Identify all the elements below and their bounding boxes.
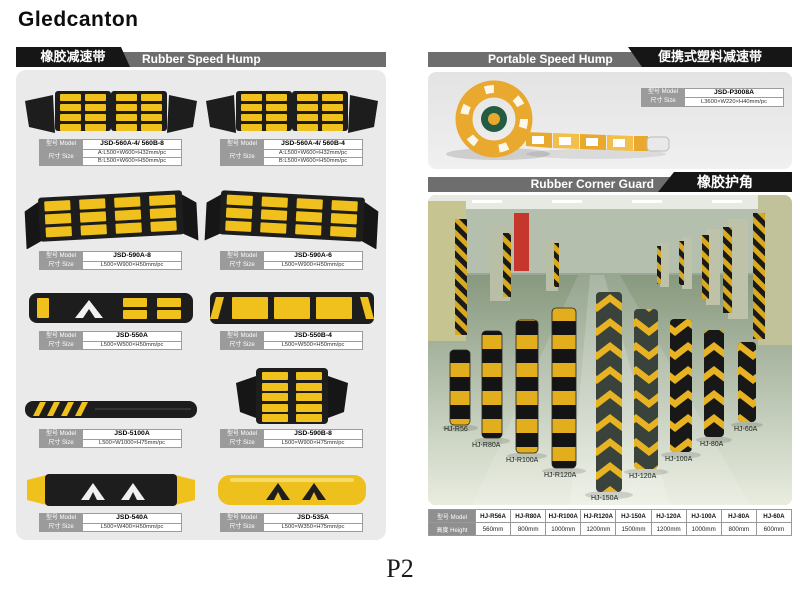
speed-hump-image [204,467,380,511]
corner-model: HJ-R56A [476,510,511,523]
size-label: 尺寸 Size [40,149,83,165]
size-value: L500×W900×H50mm/pc [264,261,363,270]
portable-speed-hump-panel: 型号 Model JSD-P3008A 尺寸 Size L3600×W220×H… [428,72,792,169]
parking-garage-scene [428,195,792,505]
corner-guard-photo-label: HJ-150A [591,495,618,502]
size-label: 尺寸 Size [221,341,264,350]
product-spec-table: 型号 Model JSD-590A-6 尺寸 Size L500×W900×H5… [220,251,363,270]
size-value: L500×W400×H50mm/pc [83,523,182,532]
corner-height: 1000mm [546,523,581,536]
corner-model: HJ-R100A [546,510,581,523]
corner-model: HJ-150A [616,510,651,523]
speed-hump-image [204,183,380,249]
model-value: JSD-P3008A [685,89,784,98]
model-value: JSD-590A-6 [264,252,363,261]
speed-hump-image [204,287,380,329]
height-label: 高度 Height [429,523,476,536]
product-card: 型号 Model JSD-540A 尺寸 Size L500×W400×H50m… [20,454,201,532]
product-spec-table: 型号 Model JSD-560A-4/ 560B-8 尺寸 Size A:L5… [39,139,182,166]
corner-model: HJ-100A [686,510,721,523]
speed-hump-image [204,363,380,427]
corner-guard-photo-label: HJ-R56 [444,426,468,433]
size-value: L500×W500×H50mm/pc [83,341,182,350]
model-label: 型号 Model [429,510,476,523]
corner-guard-photo-label: HJ-100A [665,456,692,463]
product-card: 型号 Model JSD-550A 尺寸 Size L500×W500×H50m… [20,276,201,350]
rubber-speed-hump-title-cn: 橡胶减速带 [40,49,105,64]
size-label: 尺寸 Size [221,523,264,532]
size-value: L500×W900×H75mm/pc [264,439,363,448]
product-spec-table: 型号 Model JSD-540A 尺寸 Size L500×W400×H50m… [39,513,182,532]
portable-speed-hump-title-en: Portable Speed Hump [488,52,613,66]
product-card: 型号 Model JSD-550B-4 尺寸 Size L500×W500×H5… [201,276,382,350]
portable-speed-hump-header-tab: 便携式塑料减速带 [628,47,792,67]
size-label: 尺寸 Size [221,439,264,448]
size-value-a: A:L500×W600×H32mm/pc [83,149,182,157]
size-label: 尺寸 Size [40,439,83,448]
model-value: JSD-535A [264,514,363,523]
corner-model: HJ-R80A [511,510,546,523]
model-label: 型号 Model [221,332,264,341]
corner-guard-photo-label: HJ-80A [700,441,723,448]
corner-guard-photo-label: HJ-R100A [506,457,538,464]
corner-model: HJ-R120A [581,510,616,523]
speed-hump-image [23,389,199,427]
portable-speed-hump-title-cn: 便携式塑料减速带 [658,49,762,64]
size-label: 尺寸 Size [40,523,83,532]
size-value-b: B:L500×W600×H50mm/pc [83,157,182,165]
rubber-speed-hump-header-tab: 橡胶减速带 [16,47,130,67]
corner-height: 1200mm [651,523,686,536]
corner-model: HJ-120A [651,510,686,523]
product-card: 型号 Model JSD-535A 尺寸 Size L500×W350×H75m… [201,454,382,532]
model-label: 型号 Model [642,89,685,98]
corner-guard-photo-label: HJ-R80A [472,442,500,449]
model-value: JSD-560A-4/ 560B-8 [83,140,182,149]
product-spec-table: 型号 Model JSD-560A-4/ 560B-4 尺寸 Size A:L5… [220,139,363,166]
corner-height: 1200mm [581,523,616,536]
product-card: 型号 Model JSD-5100A 尺寸 Size L500×W1000×H7… [20,356,201,448]
corner-height: 1500mm [616,523,651,536]
corner-guard-photo-label: HJ-R120A [544,472,576,479]
model-label: 型号 Model [221,140,264,149]
corner-height: 1000mm [686,523,721,536]
portable-speed-hump-image [436,74,676,166]
product-spec-table: 型号 Model JSD-590B-8 尺寸 Size L500×W900×H7… [220,429,363,448]
corner-guard-title-cn: 橡胶护角 [697,174,753,190]
corner-guard-photo: HJ-R56 HJ-R80A HJ-R100A HJ-R120A HJ-150A… [428,195,792,505]
model-label: 型号 Model [221,514,264,523]
model-value: JSD-5100A [83,430,182,439]
brand-logo: Gledcanton [18,8,139,32]
model-label: 型号 Model [221,430,264,439]
rubber-speed-hump-panel: 型号 Model JSD-560A-4/ 560B-8 尺寸 Size A:L5… [16,70,386,540]
product-spec-table: 型号 Model JSD-535A 尺寸 Size L500×W350×H75m… [220,513,363,532]
speed-hump-image [204,85,380,137]
product-spec-table: 型号 Model JSD-590A-8 尺寸 Size L500×W900×H5… [39,251,182,270]
corner-guard-table: 型号 Model HJ-R56A HJ-R80A HJ-R100A HJ-R12… [428,509,792,536]
product-card: 型号 Model JSD-560A-4/ 560B-4 尺寸 Size A:L5… [201,78,382,166]
model-value: JSD-560A-4/ 560B-4 [264,140,363,149]
model-value: JSD-550B-4 [264,332,363,341]
speed-hump-image [23,183,199,249]
model-label: 型号 Model [40,332,83,341]
product-card: 型号 Model JSD-560A-4/ 560B-8 尺寸 Size A:L5… [20,78,201,166]
model-value: JSD-540A [83,514,182,523]
model-value: JSD-550A [83,332,182,341]
model-label: 型号 Model [40,514,83,523]
corner-model: HJ-80A [721,510,756,523]
model-label: 型号 Model [40,140,83,149]
model-label: 型号 Model [40,252,83,261]
size-value-a: A:L500×W600×H32mm/pc [264,149,363,157]
product-card: 型号 Model JSD-590A-6 尺寸 Size L500×W900×H5… [201,172,382,270]
corner-guard-height-row: 高度 Height 560mm 800mm 1000mm 1200mm 1500… [429,523,792,536]
corner-model: HJ-60A [756,510,791,523]
model-label: 型号 Model [221,252,264,261]
rubber-speed-hump-title-en: Rubber Speed Hump [142,52,261,66]
product-spec-table: 型号 Model JSD-550A 尺寸 Size L500×W500×H50m… [39,331,182,350]
product-spec-table: 型号 Model JSD-5100A 尺寸 Size L500×W1000×H7… [39,429,182,448]
size-value: L500×W500×H50mm/pc [264,341,363,350]
size-label: 尺寸 Size [40,341,83,350]
model-value: JSD-590B-8 [264,430,363,439]
speed-hump-image [23,85,199,137]
corner-guard-photo-label: HJ-120A [629,473,656,480]
size-label: 尺寸 Size [40,261,83,270]
corner-height: 560mm [476,523,511,536]
size-value: L500×W900×H50mm/pc [83,261,182,270]
corner-guard-title-en: Rubber Corner Guard [531,177,654,191]
size-value-b: B:L500×W600×H50mm/pc [264,157,363,165]
size-label: 尺寸 Size [221,261,264,270]
page-number: P2 [0,554,800,584]
model-label: 型号 Model [40,430,83,439]
size-label: 尺寸 Size [221,149,264,165]
product-card: 型号 Model JSD-590B-8 尺寸 Size L500×W900×H7… [201,356,382,448]
size-value: L3600×W220×H40mm/pc [685,98,784,107]
product-spec-table: 型号 Model JSD-550B-4 尺寸 Size L500×W500×H5… [220,331,363,350]
corner-guard-photo-label: HJ-60A [734,426,757,433]
size-label: 尺寸 Size [642,98,685,107]
portable-spec-table: 型号 Model JSD-P3008A 尺寸 Size L3600×W220×H… [641,88,784,107]
corner-height: 800mm [721,523,756,536]
speed-hump-image [23,467,199,511]
model-value: JSD-590A-8 [83,252,182,261]
product-card: 型号 Model JSD-590A-8 尺寸 Size L500×W900×H5… [20,172,201,270]
corner-height: 600mm [756,523,791,536]
corner-guard-header-tab: 橡胶护角 [658,172,792,192]
size-value: L500×W1000×H75mm/pc [83,439,182,448]
corner-height: 800mm [511,523,546,536]
speed-hump-image [23,287,199,329]
size-value: L500×W350×H75mm/pc [264,523,363,532]
corner-guard-model-row: 型号 Model HJ-R56A HJ-R80A HJ-R100A HJ-R12… [429,510,792,523]
